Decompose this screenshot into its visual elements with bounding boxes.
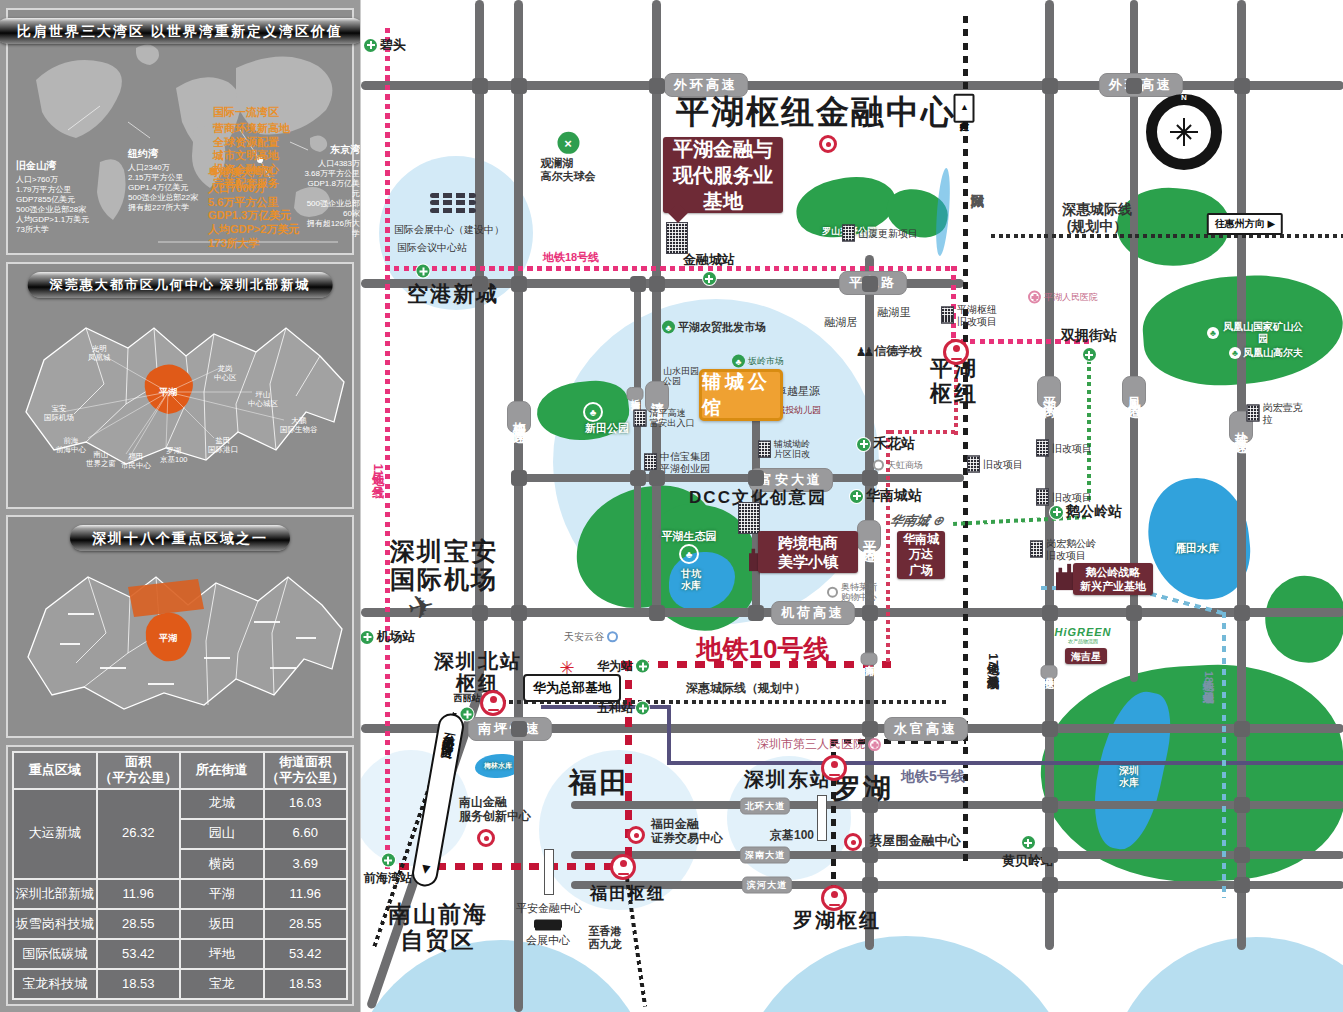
road-intersection bbox=[1234, 847, 1250, 863]
region-cell: 深圳北部新城 bbox=[13, 879, 97, 909]
road-label-pingji: 平吉大道 bbox=[857, 520, 881, 552]
ppl-icon: ♟♟ bbox=[856, 345, 872, 359]
road-intersection bbox=[1042, 847, 1058, 863]
poi-label: 深圳市第三人民医院 bbox=[757, 738, 865, 752]
panel-key-areas: 深圳十八个重点区域之一 平湖 bbox=[6, 515, 354, 738]
poi-label: 旧改项目 bbox=[1052, 491, 1092, 503]
pinghu-hub-renewal: 平湖枢纽 旧改项目 bbox=[941, 304, 997, 327]
target-caiwuwei bbox=[844, 833, 862, 851]
huanancheng-logo: 华南城 ⊕ bbox=[890, 512, 944, 530]
road-intersection bbox=[1042, 605, 1058, 621]
station-label: 机场站 bbox=[377, 628, 416, 646]
poi-label: 平湖枢纽 旧改项目 bbox=[957, 304, 997, 327]
poi-label: 福田金融 证券交易中心 bbox=[651, 818, 723, 846]
tower-icon bbox=[817, 795, 827, 841]
road-h-shennan bbox=[571, 851, 1343, 859]
bay-label: 东京湾人口4383万 3.68万平方公里 GDP1.8万亿美元 500强企业总部… bbox=[304, 144, 360, 239]
bldg-icon bbox=[967, 456, 980, 473]
target-nanshan-finance bbox=[477, 829, 495, 847]
banner-text: 至前海蛇口自贸区 bbox=[440, 722, 460, 741]
panel3-title: 深圳十八个重点区域之一 bbox=[70, 525, 290, 551]
road-intersection bbox=[1234, 78, 1250, 94]
region-cell: 宝龙科技城 bbox=[13, 969, 97, 999]
metro-station-icon bbox=[850, 490, 863, 503]
golf-icon: × bbox=[557, 132, 579, 154]
road-label-shuiguan: 水官高速 bbox=[884, 717, 968, 741]
road-intersection bbox=[472, 605, 488, 621]
hub-pinghu bbox=[943, 339, 969, 365]
shanxia-renewal: 山厦更新项目 bbox=[842, 225, 918, 242]
road-intersection bbox=[1126, 605, 1142, 621]
street-area-cell: 18.53 bbox=[264, 969, 348, 999]
station-jinrongcheng: 金融城站 bbox=[683, 251, 735, 285]
poi-label: 融湖居 bbox=[825, 316, 858, 329]
xinde-school: ♟♟信德学校 bbox=[856, 345, 923, 359]
street-area-cell: 3.69 bbox=[264, 849, 348, 879]
station-huanancheng: 华南城站 bbox=[850, 487, 922, 505]
third-people-hospital: 深圳市第三人民医院 bbox=[757, 738, 881, 752]
station-shuangyongjie: 双拥街站 bbox=[1061, 327, 1117, 361]
pingan-tower-icon bbox=[544, 849, 554, 895]
road-intersection bbox=[649, 78, 665, 94]
poi-label: 平安金融中心 bbox=[516, 902, 582, 915]
dcc-building-icon bbox=[738, 502, 760, 534]
panel2-title: 深莞惠大都市区几何中心 深圳北部新城 bbox=[28, 272, 333, 298]
table: 重点区域面积 （平方公里）所在街道街道面积 （平方公里）大运新城26.32龙城1… bbox=[12, 751, 348, 1000]
compass: N bbox=[1146, 94, 1222, 170]
road-intersection bbox=[511, 276, 527, 292]
region-cell: 国际低碳城 bbox=[13, 939, 97, 969]
qingping-entrance: 清平高速 富安出入口 bbox=[634, 408, 695, 429]
region-cell: 坂雪岗科技城 bbox=[13, 909, 97, 939]
sea-wave bbox=[734, 936, 1078, 1012]
cloud-icon bbox=[607, 632, 618, 643]
city-node-label: 大鹏 国际生物谷 bbox=[280, 416, 318, 435]
metro-station-icon bbox=[417, 265, 430, 278]
station-label: 华为站 bbox=[597, 658, 633, 675]
bldg-icon bbox=[842, 225, 855, 242]
street-cell: 坪地 bbox=[180, 939, 264, 969]
sign-to-guangzhou: ▲ 往广州方向 bbox=[954, 94, 975, 123]
meilin-reservoir-label: 梅林水库 bbox=[484, 762, 512, 770]
poi-label: 国际会展中心（建设中） bbox=[394, 224, 504, 236]
bldg-icon bbox=[758, 441, 771, 458]
street-area-cell: 16.03 bbox=[264, 789, 348, 819]
station-qianhaiwan: 前海湾站 bbox=[364, 854, 412, 887]
hig-icon: HiGREEN农产品物流园 bbox=[1054, 623, 1111, 644]
road-intersection bbox=[862, 847, 878, 863]
table-row: 宝龙科技城18.53宝龙18.53 bbox=[13, 969, 347, 999]
road-h-fuan bbox=[518, 474, 964, 482]
metro-11-label: 地铁11号线 bbox=[371, 464, 385, 477]
table-row: 深圳北部新城11.96平湖11.96 bbox=[13, 879, 347, 909]
road-intersection bbox=[1126, 78, 1142, 94]
pingan-tower-label: 平安金融中心 bbox=[516, 902, 582, 915]
sidebar: 比肩世界三大湾区 以世界湾重新定义湾区价值 bbox=[0, 0, 360, 1012]
to-hongkong-label: 至香港 西九龙 bbox=[589, 925, 622, 950]
metro-line-11 bbox=[385, 28, 390, 873]
metro-station-icon bbox=[636, 702, 649, 715]
gankeng-label: 甘坑 水库 bbox=[681, 568, 701, 592]
road-intersection bbox=[862, 605, 878, 621]
circ-icon bbox=[873, 460, 884, 471]
station-label: 华南城站 bbox=[866, 487, 922, 505]
bldg-icon bbox=[1030, 541, 1043, 558]
road-intersection bbox=[748, 605, 764, 621]
city-node-label: 南山 世界之窗 bbox=[86, 450, 116, 469]
metro-station-icon bbox=[382, 854, 395, 867]
sq-icon: 华南城 ⊕ bbox=[888, 512, 946, 530]
metro-line-5 bbox=[667, 705, 671, 765]
city-node-label: 光明 凤凰城 bbox=[88, 344, 111, 363]
ronghuju: 融湖居 bbox=[825, 316, 858, 329]
road-label-fenghuang: 凤凰大道 bbox=[1122, 376, 1146, 408]
kingkey100-icon bbox=[817, 795, 827, 841]
road-intersection bbox=[511, 470, 527, 486]
shanshui-park: 山水田园 公园 bbox=[663, 366, 699, 387]
station-label: 双拥街站 bbox=[1061, 327, 1117, 345]
bay-label: 纽约湾人口2340万 2.15万平方公里 GDP1.4万亿美元 500强企业总部… bbox=[128, 148, 198, 213]
leafw-icon: ♣ bbox=[1229, 347, 1241, 359]
table-row: 大运新城26.32龙城16.03 bbox=[13, 789, 347, 819]
road-intersection bbox=[630, 470, 646, 486]
title-luohu-hub: 罗湖枢纽 bbox=[793, 909, 881, 931]
badge-huawei-hq: 华为总部基地 bbox=[523, 674, 621, 702]
poster: 比肩世界三大湾区 以世界湾重新定义湾区价值 bbox=[0, 0, 1343, 1012]
svg-text:平湖: 平湖 bbox=[158, 633, 177, 643]
bldg-icon bbox=[1036, 489, 1049, 506]
castle-icon bbox=[1056, 564, 1074, 591]
street-cell: 龙城 bbox=[180, 789, 264, 819]
road-v-meiguan bbox=[514, 0, 523, 1012]
metro-station-icon bbox=[361, 631, 374, 644]
road-label-binhe: 滨河大道 bbox=[742, 877, 792, 894]
shenhui-label-south: 深惠城际线（规划中） bbox=[686, 681, 806, 695]
hall-icon bbox=[534, 920, 562, 929]
station-convention bbox=[417, 265, 430, 278]
poi-label: 岗宏壹克拉 bbox=[1263, 402, 1312, 425]
station-airport: 机场站 bbox=[361, 628, 416, 646]
fenghuang-golf-icon: ♣ bbox=[1229, 347, 1241, 359]
ganghong-yikela: 岗宏壹克拉 bbox=[1247, 402, 1312, 425]
region-cell: 大运新城 bbox=[13, 789, 97, 879]
leafw-icon: ♣ bbox=[1207, 327, 1219, 339]
metro-18-label: 地铁18号线 bbox=[543, 251, 599, 264]
nanshan-finance-label: 南山金融 服务创新中心 bbox=[459, 796, 531, 824]
area-cell: 18.53 bbox=[97, 969, 181, 999]
badge-egongling-base: 鹅公岭战略 新兴产业基地 bbox=[1073, 563, 1153, 595]
road-intersection bbox=[511, 721, 527, 737]
street-cell: 横岗 bbox=[180, 849, 264, 879]
ecopark-label: 平湖生态园 bbox=[662, 530, 717, 543]
target-futian-finance bbox=[627, 826, 645, 844]
panel-world-bays: 比肩世界三大湾区 以世界湾重新定义湾区价值 bbox=[6, 8, 354, 255]
convention-hall-label: 会展中心 bbox=[526, 934, 570, 947]
bldg2-icon bbox=[666, 222, 688, 254]
fucheng-mansion: 辅城公馆 bbox=[699, 369, 783, 421]
road-label-meiguan: 梅观高速 bbox=[507, 401, 531, 433]
metro-18-planned-label: 地铁18号线（规划中） bbox=[1201, 671, 1214, 683]
metro-5-label: 地铁5号线 bbox=[901, 768, 965, 785]
poi-label: 中信宝集团 平湖创业园 bbox=[660, 451, 710, 474]
bldg-icon bbox=[1036, 440, 1049, 457]
metro-station-icon bbox=[461, 708, 474, 721]
table-header: 街道面积 （平方公里） bbox=[264, 752, 348, 789]
sea-wave bbox=[1108, 937, 1343, 1012]
poi-label: 平湖人民医院 bbox=[1044, 292, 1098, 302]
poi-label: 奥特莱斯 购物中心 bbox=[841, 582, 877, 603]
title-shenzhenbei-hub: 深圳北站 枢纽 bbox=[434, 650, 522, 695]
treew-icon: ♣ bbox=[679, 544, 699, 564]
road-label-banlan: 坂澜大道 bbox=[627, 387, 644, 401]
poi-label: 山厦更新项目 bbox=[858, 227, 918, 239]
hub-shenzhenbei bbox=[480, 690, 506, 716]
convention-hall-icon bbox=[534, 920, 562, 929]
road-intersection bbox=[748, 470, 764, 486]
table-row: 国际低碳城53.42坪地53.42 bbox=[13, 939, 347, 969]
red-dashed-zone bbox=[890, 430, 956, 434]
shenzhen-reservoir-label: 深圳 水库 bbox=[1119, 765, 1139, 789]
renewal-project: 旧改项目 bbox=[1036, 440, 1092, 457]
road-label-pinghu-ave: 平湖大街 bbox=[1037, 376, 1061, 408]
green-planned-line bbox=[1087, 352, 1091, 504]
tower-icon bbox=[544, 849, 554, 895]
street-area-cell: 11.96 bbox=[264, 879, 348, 909]
metro-station-icon bbox=[1050, 506, 1063, 519]
station-label: 金融城站 bbox=[683, 251, 735, 269]
finance-city-building bbox=[666, 222, 688, 254]
poi-label: 山水田园 公园 bbox=[663, 366, 699, 387]
ganghong-egongling-renewal: 岗宏鹅公岭 旧改项目 bbox=[1030, 538, 1096, 561]
metro-station-icon bbox=[703, 272, 716, 285]
road-intersection bbox=[630, 276, 646, 292]
title-futian-hub: 福田枢纽 bbox=[590, 884, 666, 903]
road-h-waihuan bbox=[361, 81, 1343, 90]
bay-label: 旧金山湾人口>760万 1.79万平方公里 GDP7855亿美元 500强企业总… bbox=[16, 160, 89, 235]
fenghuang-golf-label: 凤凰山高尔夫 bbox=[1243, 347, 1303, 359]
area-cell: 53.42 bbox=[97, 939, 181, 969]
metro-station-icon bbox=[636, 660, 649, 673]
station-huawei: 华为站 bbox=[597, 658, 649, 675]
road-v-banlan bbox=[634, 279, 641, 612]
area-cell: 28.55 bbox=[97, 909, 181, 939]
bldg-icon bbox=[644, 454, 657, 471]
bldg-icon bbox=[1247, 405, 1260, 422]
expo-center-icon bbox=[430, 190, 476, 216]
station-label: 前海湾站 bbox=[364, 870, 412, 887]
badge-pinghu-finance-base: 平湖金融与 现代服务业 基地 bbox=[663, 137, 783, 213]
fuchengao-renewal: 辅城坳岭 片区旧改 bbox=[758, 439, 810, 460]
metro-17-label: 地铁17号线（规划中） bbox=[986, 653, 1000, 666]
poi-label: 天虹商场 bbox=[887, 460, 923, 470]
road-intersection bbox=[472, 276, 488, 292]
metro-line-5 bbox=[667, 761, 1343, 765]
castle-icon bbox=[1056, 564, 1074, 591]
road-intersection bbox=[649, 276, 665, 292]
expo-icon bbox=[430, 190, 476, 216]
xintian-tree-icon: ♣ bbox=[583, 402, 603, 422]
poi-label: 清平高速 富安出入口 bbox=[650, 408, 695, 429]
station-label: 西丽站 bbox=[454, 692, 481, 705]
street-cell: 坂田 bbox=[180, 909, 264, 939]
panel1-title: 比肩世界三大湾区 以世界湾重新定义湾区价值 bbox=[0, 18, 365, 44]
futian-finance-label: 福田金融 证券交易中心 bbox=[651, 818, 723, 846]
road-intersection bbox=[1234, 797, 1250, 813]
station-label: 五和站 bbox=[597, 700, 633, 717]
badge-wanda-plaza: 华南城 万达 广场 bbox=[897, 531, 945, 579]
yantian-reservoir-label: 雁田水库 bbox=[1175, 542, 1219, 555]
street-cell: 园山 bbox=[180, 819, 264, 849]
road-intersection bbox=[1234, 877, 1250, 893]
hub-shenzhen-east bbox=[821, 755, 847, 781]
metro-station-icon bbox=[1083, 348, 1096, 361]
target-finance-center bbox=[819, 135, 837, 153]
road-intersection bbox=[649, 605, 665, 621]
pinghu-wholesale-market: ♣平湖农贸批发市场 bbox=[662, 321, 766, 334]
road-intersection bbox=[862, 877, 878, 893]
mine-park-label: 凤凰山国家矿山公园 bbox=[1223, 321, 1304, 345]
road-intersection bbox=[862, 470, 878, 486]
table-row: 坂雪岗科技城28.55坂田28.55 bbox=[13, 909, 347, 939]
hub-futian bbox=[610, 854, 636, 880]
city-node-label: 福田 市民中心 bbox=[121, 452, 151, 471]
bldg-icon bbox=[634, 410, 647, 427]
road-intersection bbox=[1042, 797, 1058, 813]
road-intersection bbox=[649, 470, 665, 486]
poi-label: 观澜湖 高尔夫球会 bbox=[541, 157, 596, 182]
city-node-label: 前海 前海中心 bbox=[56, 436, 86, 455]
station-wuhe: 五和站 bbox=[597, 700, 649, 717]
outlets-mall: 奥特莱斯 购物中心 bbox=[827, 582, 877, 603]
poi-label: 信德学校 bbox=[874, 345, 922, 359]
road-intersection bbox=[511, 78, 527, 94]
city-node-label: 坪山 中心城区 bbox=[248, 390, 278, 409]
circ-icon bbox=[827, 587, 838, 598]
title-pinghu-hub-finance: 平湖枢纽金融中心 bbox=[676, 94, 956, 131]
poi-label: 京基100 bbox=[770, 829, 814, 843]
poi-label: 旧改项目 bbox=[1052, 442, 1092, 454]
street-area-cell: 6.60 bbox=[264, 819, 348, 849]
metro-station-icon bbox=[364, 39, 377, 52]
metro-10-label: 地铁10号线 bbox=[697, 634, 830, 665]
road-label-danping: 丹平快速 bbox=[1041, 665, 1058, 679]
region-map: 平湖 bbox=[8, 264, 352, 507]
road-label-beihuan: 北环大道 bbox=[740, 798, 790, 815]
area-cell: 11.96 bbox=[97, 879, 181, 909]
poi-label: 南山金融 服务创新中心 bbox=[459, 796, 531, 824]
poi-label: 至香港 西九龙 bbox=[589, 925, 622, 950]
title-nanshan-qianhai: 南山前海 自贸区 bbox=[388, 902, 488, 954]
shenhui-label-north: 深惠城际线 (规划中） bbox=[1062, 201, 1132, 235]
road-label-bulan: 布澜路 bbox=[861, 653, 878, 666]
street-area-cell: 53.42 bbox=[264, 939, 348, 969]
xintian-park-label: 新田公园 bbox=[585, 422, 629, 435]
street-area-cell: 28.55 bbox=[264, 909, 348, 939]
city-node-label: 宝安 国际机场 bbox=[44, 404, 74, 423]
mine-park-leaf: ♣ bbox=[1207, 327, 1219, 339]
river-mark bbox=[933, 168, 953, 257]
area-map: 外环高速外环高速平龙路梅观高速清平高速坂澜大道平吉大道布澜路平湖大街凤凰大道盐排… bbox=[360, 0, 1343, 1012]
hub-luohu bbox=[821, 885, 847, 911]
title-shenzhen-east: 深圳东站 bbox=[744, 768, 832, 790]
road-intersection bbox=[1042, 721, 1058, 737]
sign-to-huizhou: 往惠州方向 ▶ bbox=[1207, 213, 1283, 235]
ecopark-tree-icon: ♣ bbox=[679, 544, 699, 564]
treew-icon: ♣ bbox=[583, 402, 603, 422]
station-bitou: 碧头 bbox=[364, 36, 406, 54]
station-egongling: 鹅公岭站 bbox=[1050, 503, 1122, 521]
hosp-icon bbox=[1028, 291, 1041, 304]
tianhong-mall: 天虹商场 bbox=[873, 460, 923, 471]
shenhui-intercity-north bbox=[991, 234, 1343, 238]
road-intersection bbox=[862, 797, 878, 813]
svg-text:平湖: 平湖 bbox=[158, 387, 177, 397]
city-node-label: 罗湖 京基100 bbox=[160, 446, 188, 465]
poi-label: 国际会议中心站 bbox=[397, 242, 467, 254]
city-node-label: 盐田 国际港口 bbox=[208, 436, 238, 455]
road-intersection bbox=[472, 78, 488, 94]
kingkey100-label: 京基100 bbox=[770, 829, 814, 843]
metro-line-18-planned bbox=[1222, 612, 1226, 898]
road-intersection bbox=[1234, 605, 1250, 621]
banling-market: ♣坂岭市场 bbox=[732, 355, 784, 368]
station-label: 碧头 bbox=[380, 36, 406, 54]
green-hill bbox=[1258, 570, 1343, 669]
road-label-shennan: 深南大道 bbox=[740, 847, 790, 864]
key-area-table: 重点区域面积 （平方公里）所在街道街道面积 （平方公里）大运新城26.32龙城1… bbox=[6, 745, 354, 1006]
street-cell: 宝龙 bbox=[180, 969, 264, 999]
poi-label: 会展中心 bbox=[526, 934, 570, 947]
road-h-binhe bbox=[571, 881, 1343, 889]
poi-label: 天安云谷 bbox=[564, 631, 604, 643]
poi-label: 旧改项目 bbox=[983, 458, 1023, 470]
road-intersection bbox=[1234, 721, 1250, 737]
road-intersection bbox=[511, 605, 527, 621]
bay-label: 粤港澳大湾区人口7000万 5.6万平方公里 GDP1.3万亿美元 人均GDP>… bbox=[208, 166, 299, 251]
renewal-project: 旧改项目 bbox=[967, 456, 1023, 473]
poi-label: 岗宏鹅公岭 旧改项目 bbox=[1046, 538, 1096, 561]
poi-label: 辅城坳岭 片区旧改 bbox=[774, 439, 810, 460]
caiwuwei-label: 蔡屋围金融中心 bbox=[870, 834, 961, 849]
station-hehua: 禾花站 bbox=[857, 435, 915, 453]
area-cell: 26.32 bbox=[97, 789, 181, 879]
station-label: 禾花站 bbox=[873, 435, 915, 453]
road-intersection bbox=[1042, 877, 1058, 893]
poi-label: 蔡屋围金融中心 bbox=[870, 834, 961, 849]
airplane-icon: ✈ bbox=[408, 588, 435, 626]
expo-station-label: 国际会议中心站 bbox=[397, 242, 467, 254]
road-h-beihuan bbox=[571, 801, 1343, 809]
ronghuli: 融湖里 bbox=[878, 306, 911, 319]
renewal-project: 旧改项目 bbox=[1036, 489, 1092, 506]
title-baoan-airport: 深圳宝安 国际机场 bbox=[390, 537, 498, 593]
table-header: 重点区域 bbox=[13, 752, 97, 789]
table-header: 面积 （平方公里） bbox=[97, 752, 181, 789]
table-header: 所在街道 bbox=[180, 752, 264, 789]
bldg2-icon bbox=[738, 502, 760, 534]
station-label: 鹅公岭站 bbox=[1066, 503, 1122, 521]
street-cell: 平湖 bbox=[180, 879, 264, 909]
metro-station-icon bbox=[1022, 836, 1035, 849]
metro-station-icon bbox=[857, 438, 870, 451]
mkt-icon: ♣ bbox=[662, 321, 675, 334]
expo-center-label: 国际会展中心（建设中） bbox=[394, 224, 504, 236]
plane-icon: ✈ bbox=[404, 586, 438, 629]
hosp-icon bbox=[868, 738, 881, 751]
poi-label: 平湖农贸批发市场 bbox=[678, 321, 766, 334]
road-label-jihe: 机荷高速 bbox=[771, 601, 855, 625]
road-intersection bbox=[862, 721, 878, 737]
